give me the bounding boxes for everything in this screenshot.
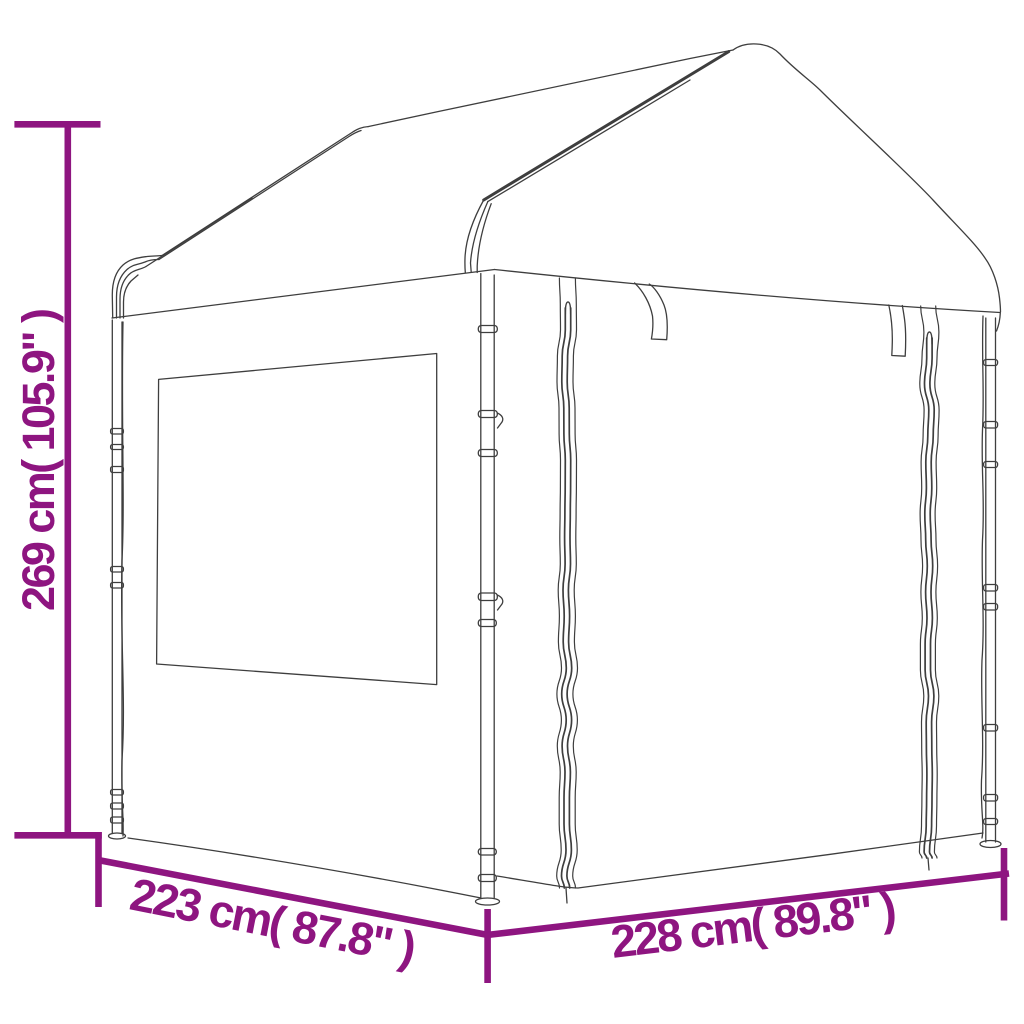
- svg-text:269 cm( 105.9" ): 269 cm( 105.9" ): [13, 308, 64, 611]
